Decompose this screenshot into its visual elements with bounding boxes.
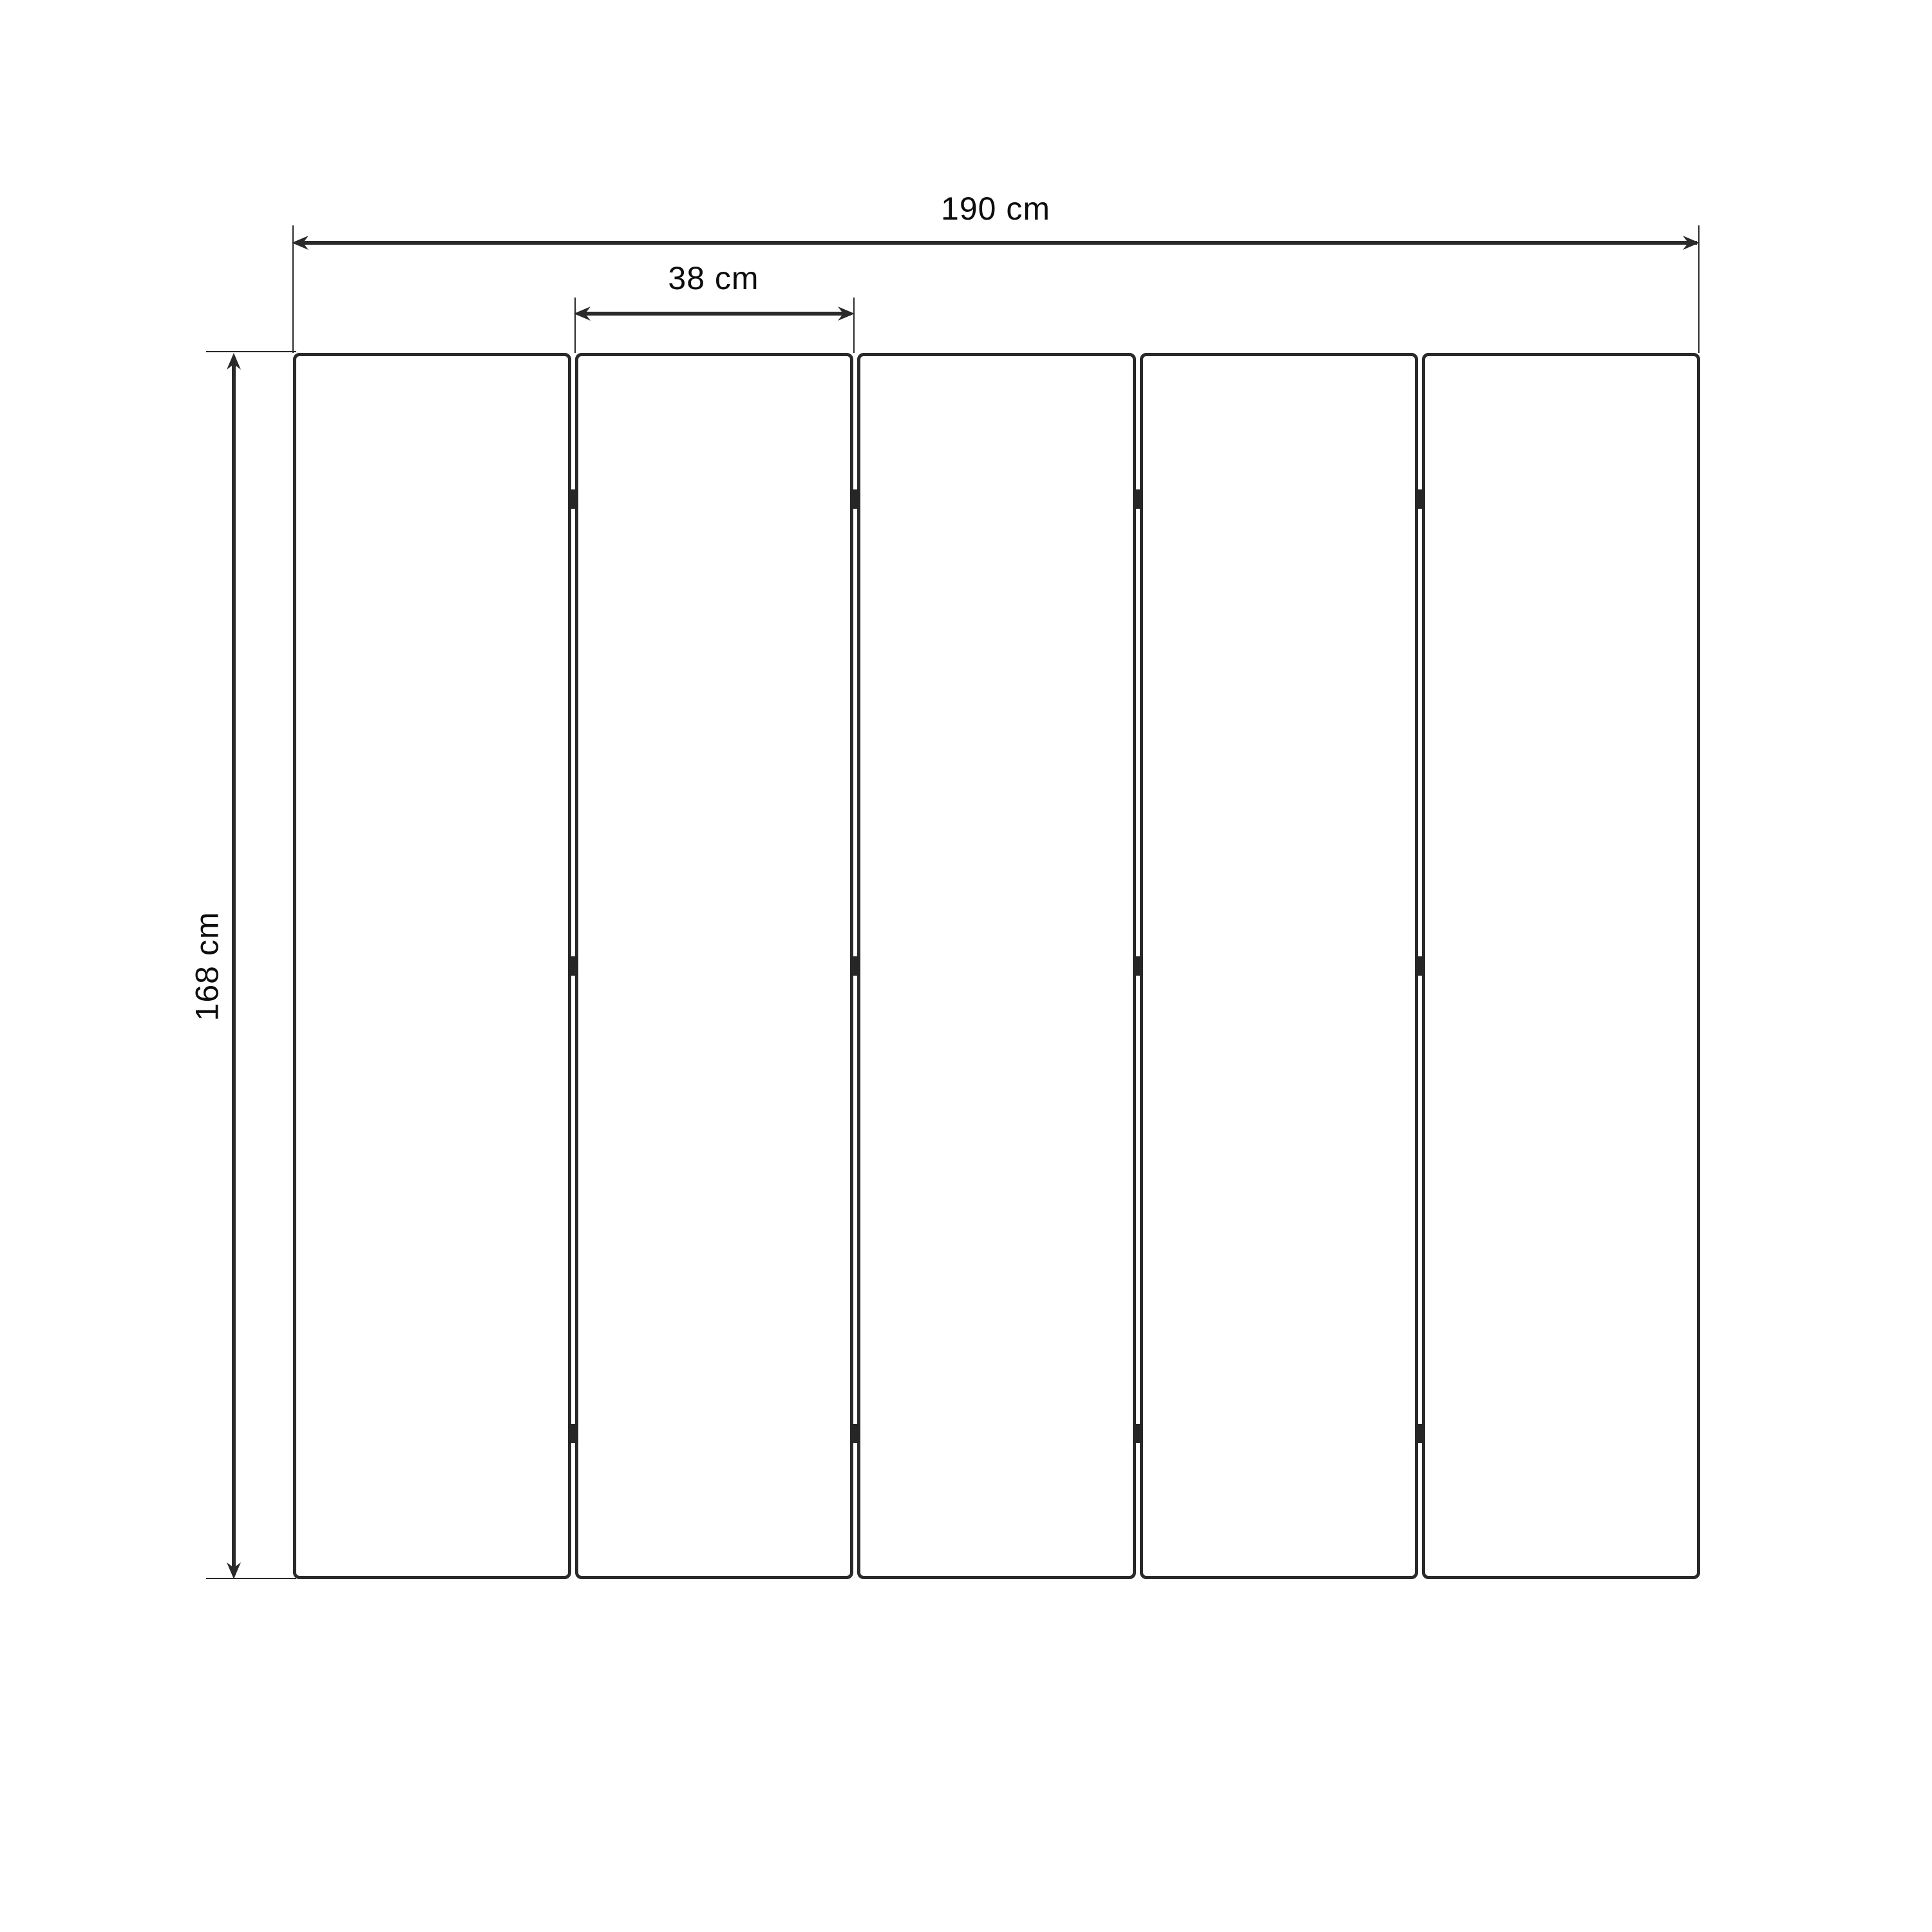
panel-3 (857, 353, 1135, 1579)
panel-4 (1140, 353, 1418, 1579)
dimension-line (578, 312, 851, 316)
panel-5 (1422, 353, 1700, 1579)
hinge (1133, 489, 1142, 509)
extension-line-right (1698, 225, 1700, 353)
total-width-label: 190 cm (867, 191, 1124, 227)
dimension-line (232, 357, 236, 1575)
hinge (851, 489, 860, 509)
hinge (1416, 489, 1425, 509)
panel-width-label: 38 cm (585, 261, 842, 296)
panel-1 (293, 353, 571, 1579)
technical-drawing-canvas: 190 cm 38 cm 168 cm (0, 0, 1932, 1932)
hinge (851, 1424, 860, 1443)
hinge (1133, 1424, 1142, 1443)
hinge (1416, 956, 1425, 976)
hinge (1416, 1424, 1425, 1443)
hinge (851, 956, 860, 976)
extension-line-top (206, 351, 296, 352)
extension-line-left (574, 298, 576, 353)
dimension-line (296, 241, 1697, 245)
height-label: 168 cm (190, 838, 225, 1095)
extension-line-right (853, 298, 855, 353)
hinge (569, 489, 578, 509)
hinge (1133, 956, 1142, 976)
panel-2 (575, 353, 853, 1579)
panel-group (293, 353, 1700, 1579)
extension-line-left (292, 225, 294, 353)
hinge (569, 956, 578, 976)
extension-line-bottom (206, 1578, 296, 1579)
hinge (569, 1424, 578, 1443)
